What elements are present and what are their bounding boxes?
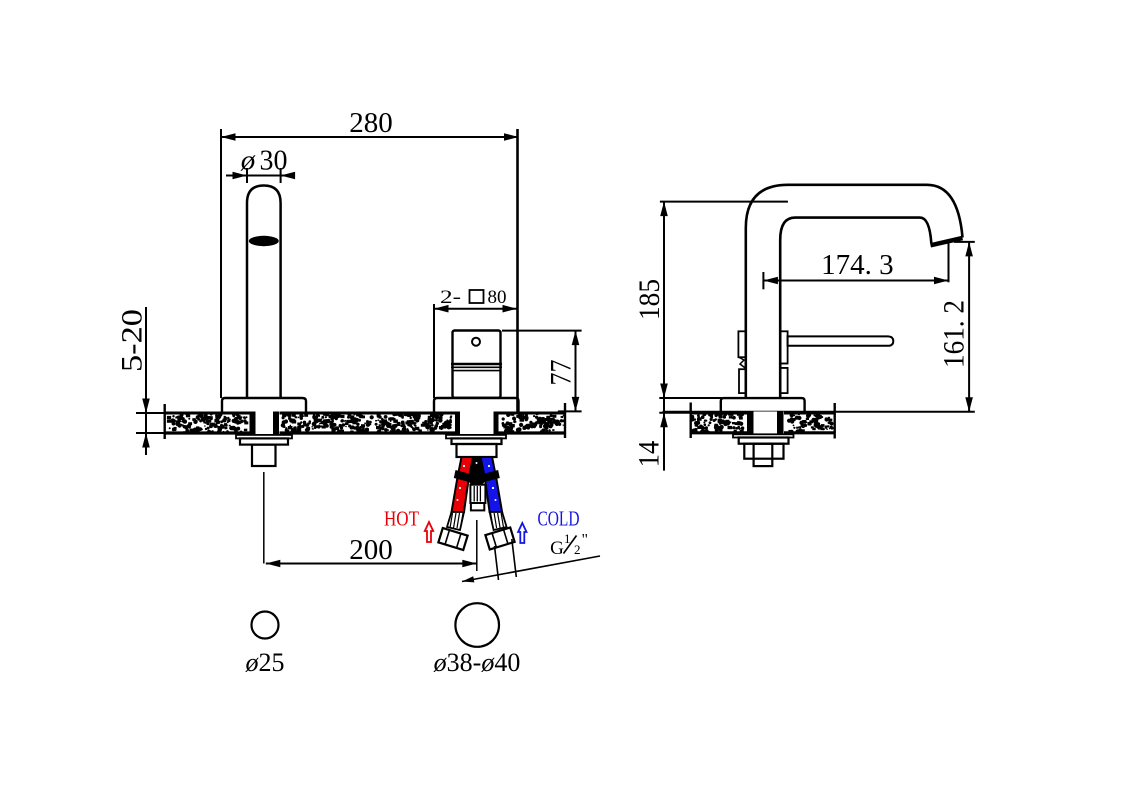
svg-text:77: 77 [545,360,578,386]
svg-text:80: 80 [488,287,507,308]
svg-text:174. 3: 174. 3 [821,249,894,281]
svg-text:5-20: 5-20 [116,309,149,372]
svg-text:HOT: HOT [384,507,419,531]
svg-text:14: 14 [633,441,666,468]
svg-text:2-: 2- [440,287,461,308]
svg-text:COLD: COLD [538,507,580,531]
svg-text:ø38-ø40: ø38-ø40 [433,648,521,677]
svg-text:280: 280 [349,107,393,139]
svg-text:30: 30 [260,145,288,177]
svg-text:G: G [550,538,564,559]
svg-text:161. 2: 161. 2 [938,300,971,368]
svg-text:2: 2 [574,542,581,557]
svg-text:": " [582,532,589,549]
svg-text:ø25: ø25 [245,648,285,677]
svg-text:185: 185 [633,279,666,320]
svg-text:200: 200 [349,534,393,566]
